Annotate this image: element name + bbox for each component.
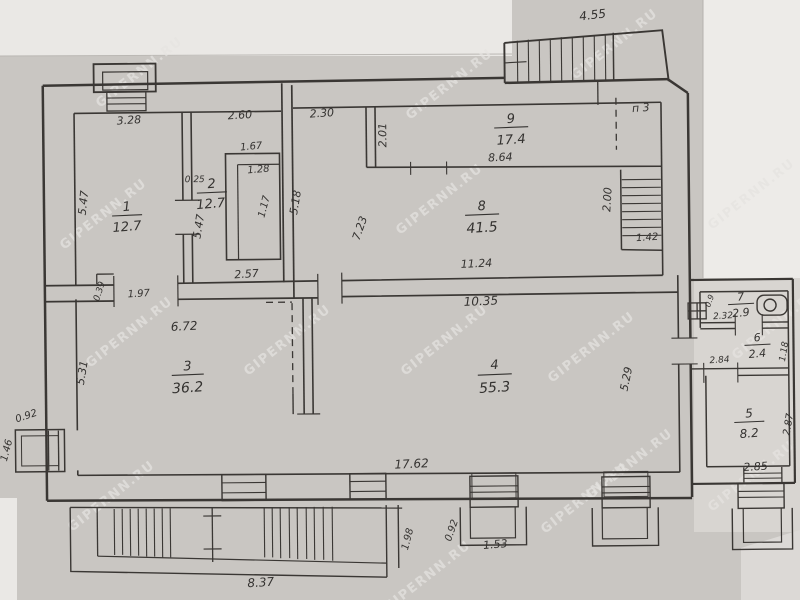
dim-r7-width: 2.32 [713,311,734,322]
dim-r5-bottom: 2.85 [743,460,768,475]
dim-r1-door: 1.97 [127,288,151,300]
dim-r3-top: 6.72 [170,319,197,334]
room9-number: 9 [506,112,515,127]
scanned-floorplan-photo: GIPERNN.RU GIPERNN.RU GIPERNN.RU GIPERNN… [0,0,800,600]
dim-r2-nook: 0.25 [185,175,205,185]
dim-r8-top: 2.30 [309,106,334,121]
dim-r6-width: 2.84 [709,355,730,366]
dim-closet-top: 1.67 [240,141,264,154]
room6-area: 2.4 [748,347,766,361]
room5-area: 8.2 [739,426,759,441]
room8-area: 41.5 [466,219,498,237]
room8-number: 8 [477,199,486,214]
room2-area: 12.7 [196,196,227,213]
room2-number: 2 [207,177,216,193]
label-p3: п 3 [631,101,650,115]
room3-area: 36.2 [172,379,204,397]
room1-number: 1 [122,200,131,216]
dim-r4-top: 10.35 [463,293,498,309]
room7-area: 2.9 [732,306,750,320]
room6-number: 6 [753,331,761,345]
floor-plan-svg: GIPERNN.RU GIPERNN.RU GIPERNN.RU GIPERNN… [0,0,800,600]
dim-r2-top: 2.60 [227,108,252,123]
dim-r1-top: 3.28 [116,113,141,128]
dim-r9-bottom: 8.64 [488,150,513,164]
dim-r8-bottom: 11.24 [460,256,492,270]
dim-stairs-right-width: 2.00 [600,187,614,212]
dim-r2-bottom: 2.57 [234,267,259,282]
room5-number: 5 [745,406,754,421]
room1-area: 12.7 [112,219,143,236]
dim-r9-left: 2.01 [376,123,389,148]
room7-number: 7 [737,290,745,304]
dim-closet-inner: 1.28 [247,164,270,177]
dim-porch-mid-width: 1.53 [483,537,508,552]
dim-r4-bottom: 17.62 [394,456,429,472]
dim-r1-left: 5.47 [76,190,92,216]
room4-number: 4 [490,358,499,373]
dim-stairs-bottom-width: 8.37 [247,575,275,591]
room4-area: 55.3 [479,379,511,397]
dim-stairs-right-bottom: 1.42 [636,232,659,244]
room3-number: 3 [183,359,192,374]
room9-area: 17.4 [496,132,526,149]
